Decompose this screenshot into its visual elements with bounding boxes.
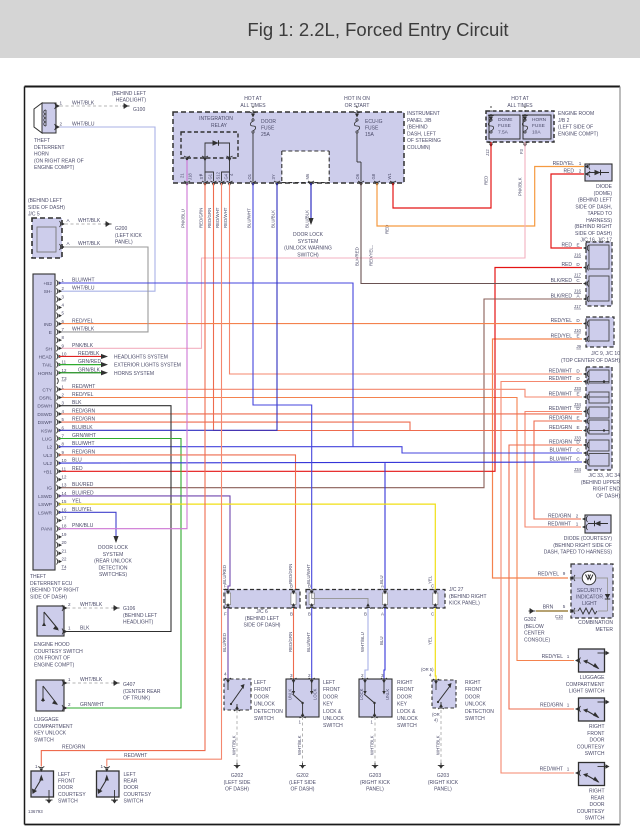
svg-text:YEL: YEL xyxy=(428,636,433,645)
svg-text:21: 21 xyxy=(180,173,185,178)
svg-text:LUGGAGE: LUGGAGE xyxy=(34,717,59,723)
svg-text:WHT/BLK: WHT/BLK xyxy=(80,602,103,608)
svg-text:UL3: UL3 xyxy=(43,453,52,459)
svg-text:ENGINE ROOM: ENGINE ROOM xyxy=(558,111,594,117)
svg-text:LIGHT SWITCH: LIGHT SWITCH xyxy=(569,689,605,695)
svg-text:J/C 33, J/C 34: J/C 33, J/C 34 xyxy=(588,473,620,479)
svg-text:G4: G4 xyxy=(224,173,229,179)
svg-text:16: 16 xyxy=(62,507,67,512)
svg-text:SWITCH): SWITCH) xyxy=(297,252,319,258)
svg-text:WHT/BLK: WHT/BLK xyxy=(80,677,103,683)
svg-text:E: E xyxy=(49,330,52,336)
svg-text:HORN: HORN xyxy=(34,152,49,158)
svg-text:5: 5 xyxy=(563,604,566,609)
svg-text:B: B xyxy=(290,612,293,617)
svg-text:DSWP: DSWP xyxy=(38,420,52,426)
svg-text:E: E xyxy=(576,416,579,421)
svg-text:DOME: DOME xyxy=(498,117,512,123)
svg-text:HEADLIGHTS SYSTEM: HEADLIGHTS SYSTEM xyxy=(114,354,168,360)
svg-text:RED/WHT: RED/WHT xyxy=(72,384,95,390)
svg-text:15A: 15A xyxy=(365,132,375,138)
svg-text:(BEHIND RIGHT: (BEHIND RIGHT xyxy=(449,594,487,600)
svg-text:FRONT: FRONT xyxy=(323,687,340,693)
svg-text:DOOR: DOOR xyxy=(590,802,605,808)
svg-text:CENTER: CENTER xyxy=(524,631,545,637)
svg-text:(OR: (OR xyxy=(432,712,440,717)
svg-text:SIDE OF DASH): SIDE OF DASH) xyxy=(30,594,67,600)
svg-text:S7: S7 xyxy=(199,174,204,180)
svg-text:UNLOCK: UNLOCK xyxy=(323,716,345,722)
svg-text:J17: J17 xyxy=(574,304,582,309)
svg-text:(BEHIND LEFT: (BEHIND LEFT xyxy=(123,613,157,619)
svg-text:RED/GRN: RED/GRN xyxy=(288,564,293,584)
svg-text:(LEFT SIDE: (LEFT SIDE xyxy=(224,780,252,786)
svg-text:2: 2 xyxy=(308,673,311,678)
svg-text:T3: T3 xyxy=(62,376,68,381)
svg-text:(BEHIND: (BEHIND xyxy=(407,125,428,131)
svg-text:FRONT: FRONT xyxy=(254,687,271,693)
svg-text:SWITCH: SWITCH xyxy=(585,751,605,757)
svg-text:SWITCH: SWITCH xyxy=(323,723,343,729)
svg-text:1: 1 xyxy=(68,677,71,682)
svg-text:BLU/BLK: BLU/BLK xyxy=(271,210,276,228)
svg-text:(BEHIND LEFT: (BEHIND LEFT xyxy=(578,198,612,204)
svg-text:G100: G100 xyxy=(133,107,145,113)
svg-text:(BEHIND LEFT: (BEHIND LEFT xyxy=(245,616,279,622)
svg-text:E: E xyxy=(576,243,579,248)
svg-text:O1: O1 xyxy=(247,173,252,179)
svg-text:25A: 25A xyxy=(261,132,271,138)
svg-text:18: 18 xyxy=(62,524,67,529)
svg-text:BLU/WHT: BLU/WHT xyxy=(247,208,252,228)
svg-text:J16: J16 xyxy=(574,253,582,258)
svg-text:WHT/BLK: WHT/BLK xyxy=(297,735,302,755)
svg-text:C10: C10 xyxy=(555,614,564,619)
svg-text:DOOR LOCK: DOOR LOCK xyxy=(293,232,324,238)
svg-text:J/C 6: J/C 6 xyxy=(256,609,268,615)
svg-text:BLU/WHT: BLU/WHT xyxy=(306,632,311,652)
svg-text:WHT/BLU: WHT/BLU xyxy=(72,286,95,292)
svg-text:10: 10 xyxy=(62,458,67,463)
svg-text:G202: G202 xyxy=(231,773,243,779)
svg-text:RELAY: RELAY xyxy=(211,123,228,129)
svg-text:DASH, LEFT: DASH, LEFT xyxy=(407,131,436,137)
svg-text:W1: W1 xyxy=(387,173,392,180)
svg-text:CONSOLE): CONSOLE) xyxy=(524,637,550,643)
svg-text:RED/WHT: RED/WHT xyxy=(540,767,563,773)
svg-text:HORN: HORN xyxy=(38,371,53,377)
svg-text:SWITCH: SWITCH xyxy=(254,716,274,722)
svg-text:G407: G407 xyxy=(123,682,135,688)
svg-text:DSWD: DSWD xyxy=(37,412,52,418)
svg-text:9: 9 xyxy=(563,571,566,576)
svg-text:REAR: REAR xyxy=(591,795,605,801)
svg-text:C: C xyxy=(431,612,434,617)
svg-text:RED/GRN: RED/GRN xyxy=(72,408,95,414)
svg-text:20: 20 xyxy=(62,540,67,545)
svg-text:FUSE: FUSE xyxy=(532,123,545,129)
svg-text:4: 4 xyxy=(429,673,432,678)
svg-text:UL2: UL2 xyxy=(43,461,52,467)
svg-text:T4: T4 xyxy=(62,565,68,570)
svg-text:15: 15 xyxy=(62,499,67,504)
svg-text:S12: S12 xyxy=(216,171,221,179)
svg-text:(DOME): (DOME) xyxy=(594,191,613,197)
svg-text:3Y: 3Y xyxy=(271,174,276,179)
svg-text:BLU/RED: BLU/RED xyxy=(222,565,227,584)
svg-text:(ON RIGHT REAR OF: (ON RIGHT REAR OF xyxy=(34,158,84,164)
svg-text:COMBINATION: COMBINATION xyxy=(578,620,613,626)
svg-text:FRONT: FRONT xyxy=(58,779,75,785)
svg-text:ENGINE HOOD: ENGINE HOOD xyxy=(34,642,70,648)
svg-text:RED/YEL: RED/YEL xyxy=(72,318,94,324)
svg-text:(LEFT SIDE OF: (LEFT SIDE OF xyxy=(558,125,593,131)
svg-text:J/C 5: J/C 5 xyxy=(28,212,40,218)
svg-text:FUSE: FUSE xyxy=(498,123,511,129)
svg-text:E: E xyxy=(576,392,579,397)
svg-text:1: 1 xyxy=(576,522,579,527)
svg-text:LOCK: LOCK xyxy=(313,688,318,700)
svg-text:(LEFT SIDE: (LEFT SIDE xyxy=(289,780,317,786)
svg-text:COURTESY: COURTESY xyxy=(124,792,152,798)
svg-text:UNLOCK: UNLOCK xyxy=(397,716,419,722)
svg-text:KICK PANEL): KICK PANEL) xyxy=(449,601,480,607)
svg-text:G106: G106 xyxy=(123,606,135,612)
svg-text:WHT/BLU: WHT/BLU xyxy=(360,632,365,652)
svg-text:DOOR: DOOR xyxy=(465,694,480,700)
svg-text:OF DASH): OF DASH) xyxy=(225,787,249,793)
svg-text:G203: G203 xyxy=(437,773,449,779)
svg-text:FRONT: FRONT xyxy=(587,731,604,737)
svg-text:3: 3 xyxy=(381,673,384,678)
svg-text:INSTRUMENT: INSTRUMENT xyxy=(407,111,440,117)
svg-text:PNK/BLU: PNK/BLU xyxy=(181,209,186,228)
svg-text:1: 1 xyxy=(567,767,570,772)
svg-text:DOOR: DOOR xyxy=(261,119,276,125)
svg-text:PANEL): PANEL) xyxy=(434,787,452,793)
svg-text:DASH, TAPED TO HARNESS): DASH, TAPED TO HARNESS) xyxy=(544,550,613,556)
svg-text:4: 4 xyxy=(224,672,227,677)
svg-text:LEFT: LEFT xyxy=(323,680,335,686)
svg-text:E: E xyxy=(576,334,579,339)
svg-text:HOT AT: HOT AT xyxy=(244,96,262,102)
svg-text:RED: RED xyxy=(484,176,489,185)
svg-text:DETECTION: DETECTION xyxy=(465,709,494,715)
svg-text:SWITCH: SWITCH xyxy=(397,723,417,729)
svg-text:(BEHIND UPPER: (BEHIND UPPER xyxy=(581,480,621,486)
svg-text:IND: IND xyxy=(44,322,53,328)
svg-text:ENGINE COMPT): ENGINE COMPT) xyxy=(34,662,75,668)
svg-text:HORNS SYSTEM: HORNS SYSTEM xyxy=(114,371,154,377)
svg-text:(BEHIND LEFT: (BEHIND LEFT xyxy=(112,91,146,97)
svg-text:J33: J33 xyxy=(574,386,582,391)
svg-text:(BEHIND TOP RIGHT: (BEHIND TOP RIGHT xyxy=(30,588,79,594)
svg-text:KEY: KEY xyxy=(397,702,408,708)
svg-text:RED/GRN: RED/GRN xyxy=(540,703,563,709)
svg-text:REAR: REAR xyxy=(124,779,138,785)
svg-text:3: 3 xyxy=(290,673,293,678)
svg-text:PNK/BLK: PNK/BLK xyxy=(518,177,523,196)
svg-text:BRN: BRN xyxy=(543,605,554,611)
svg-text:(BEHIND RIGHT SIDE OF: (BEHIND RIGHT SIDE OF xyxy=(553,543,612,549)
svg-text:INDICATOR: INDICATOR xyxy=(576,595,603,601)
svg-text:SECURITY: SECURITY xyxy=(577,588,603,594)
svg-text:OF TRUNK): OF TRUNK) xyxy=(123,696,150,702)
svg-text:WHT/BLK: WHT/BLK xyxy=(436,735,441,755)
svg-text:12: 12 xyxy=(62,475,67,480)
svg-text:RED/GRN: RED/GRN xyxy=(199,208,204,228)
svg-text:FRONT: FRONT xyxy=(397,687,414,693)
svg-text:SYSTEM: SYSTEM xyxy=(298,239,319,245)
svg-text:WHT/BLK: WHT/BLK xyxy=(370,735,375,755)
svg-text:SWITCH: SWITCH xyxy=(34,737,54,743)
svg-text:13: 13 xyxy=(62,483,67,488)
svg-text:DIODE (COURTESY): DIODE (COURTESY) xyxy=(564,536,613,542)
svg-text:136793: 136793 xyxy=(28,809,43,814)
svg-text:BLU: BLU xyxy=(379,575,384,584)
svg-text:11: 11 xyxy=(62,360,67,365)
svg-text:GRN/WHT: GRN/WHT xyxy=(80,702,104,708)
svg-text:COLUMN): COLUMN) xyxy=(407,145,431,151)
svg-text:KEY: KEY xyxy=(323,702,334,708)
svg-text:RED: RED xyxy=(561,243,572,249)
svg-text:IG: IG xyxy=(47,486,52,492)
svg-text:DOOR: DOOR xyxy=(323,694,338,700)
svg-text:2: 2 xyxy=(579,169,582,174)
svg-text:DOOR: DOOR xyxy=(124,785,139,791)
svg-text:LIGHT: LIGHT xyxy=(582,601,597,607)
svg-text:(TOP CENTER OF DASH): (TOP CENTER OF DASH) xyxy=(561,358,620,364)
svg-text:METER: METER xyxy=(596,627,614,633)
svg-text:BLK/RED: BLK/RED xyxy=(72,482,94,488)
svg-text:(RIGHT KICK: (RIGHT KICK xyxy=(360,780,391,786)
svg-text:DOOR: DOOR xyxy=(254,694,269,700)
svg-text:SH-: SH- xyxy=(44,289,53,295)
svg-text:HOT AT: HOT AT xyxy=(511,96,529,102)
svg-text:LEFT: LEFT xyxy=(58,772,70,778)
svg-text:(RIGHT KICK: (RIGHT KICK xyxy=(428,780,459,786)
svg-text:(REAR UNLOCK: (REAR UNLOCK xyxy=(94,559,132,565)
svg-text:LOCK &: LOCK & xyxy=(397,709,416,715)
svg-text:10: 10 xyxy=(62,351,67,356)
svg-text:HORN: HORN xyxy=(532,117,547,123)
svg-text:DOOR: DOOR xyxy=(590,738,605,744)
svg-text:TAPED TO: TAPED TO xyxy=(588,211,613,217)
svg-text:1: 1 xyxy=(68,626,71,631)
svg-text:PNK/BLK: PNK/BLK xyxy=(72,343,94,349)
svg-text:J/C 9, J/C 10: J/C 9, J/C 10 xyxy=(591,351,620,357)
svg-text:RED/GRN: RED/GRN xyxy=(207,208,212,228)
svg-text:J33: J33 xyxy=(574,436,582,441)
svg-text:UNLOCK: UNLOCK xyxy=(254,702,276,708)
svg-text:ENGINE COMPT): ENGINE COMPT) xyxy=(34,165,75,171)
svg-text:22: 22 xyxy=(62,557,67,562)
svg-text:THEFT: THEFT xyxy=(30,574,46,580)
svg-text:J/B 2: J/B 2 xyxy=(558,118,570,124)
svg-text:WHT/BLK: WHT/BLK xyxy=(78,241,101,247)
svg-text:(BELOW: (BELOW xyxy=(524,624,544,630)
svg-text:DOOR: DOOR xyxy=(397,694,412,700)
svg-text:FRONT: FRONT xyxy=(465,687,482,693)
svg-text:YEL: YEL xyxy=(428,575,433,584)
svg-text:SIDE OF DASH): SIDE OF DASH) xyxy=(28,205,65,211)
svg-text:RED/WHT: RED/WHT xyxy=(124,753,147,759)
svg-text:FUSE: FUSE xyxy=(365,126,379,132)
svg-text:WHT/BLK: WHT/BLK xyxy=(232,735,237,755)
svg-text:LEFT: LEFT xyxy=(254,680,266,686)
svg-text:SIDE OF DASH): SIDE OF DASH) xyxy=(575,231,612,237)
svg-text:1: 1 xyxy=(60,101,63,106)
svg-text:+B1: +B1 xyxy=(43,469,52,475)
svg-text:17: 17 xyxy=(62,516,67,521)
svg-text:L2: L2 xyxy=(47,445,53,451)
svg-text:TAIL: TAIL xyxy=(42,363,52,369)
svg-text:BLK/RED: BLK/RED xyxy=(355,247,360,266)
svg-text:J/C 27: J/C 27 xyxy=(449,587,464,593)
svg-text:LUGGAGE: LUGGAGE xyxy=(580,675,605,681)
svg-text:2: 2 xyxy=(60,122,63,127)
svg-text:HOT IN ON: HOT IN ON xyxy=(344,96,370,102)
svg-text:(CENTER REAR: (CENTER REAR xyxy=(123,689,161,695)
svg-text:E: E xyxy=(576,425,579,430)
svg-text:WHT/BLK: WHT/BLK xyxy=(78,218,101,224)
svg-text:2: 2 xyxy=(68,602,71,607)
svg-text:12: 12 xyxy=(62,368,67,373)
svg-text:G1: G1 xyxy=(208,173,213,179)
svg-text:11: 11 xyxy=(62,466,67,471)
svg-text:RED/YEL: RED/YEL xyxy=(538,572,560,578)
svg-text:RED/GRN: RED/GRN xyxy=(288,632,293,652)
svg-text:SYSTEM: SYSTEM xyxy=(103,552,124,558)
svg-text:PANEL): PANEL) xyxy=(366,787,384,793)
svg-text:J9: J9 xyxy=(576,344,581,349)
svg-text:J12: J12 xyxy=(485,149,490,156)
svg-text:J34: J34 xyxy=(574,402,582,407)
svg-text:RED/GRN: RED/GRN xyxy=(62,745,85,751)
svg-text:(LEFT KICK: (LEFT KICK xyxy=(115,233,143,239)
svg-text:F3: F3 xyxy=(519,148,524,154)
svg-text:F: F xyxy=(224,612,227,617)
svg-text:RED/YEL: RED/YEL xyxy=(542,654,564,660)
svg-text:SWITCHES): SWITCHES) xyxy=(99,572,127,578)
svg-text:COURTESY: COURTESY xyxy=(58,792,86,798)
svg-text:OF DASH): OF DASH) xyxy=(596,493,620,499)
svg-text:EXTERIOR LIGHTS SYSTEM: EXTERIOR LIGHTS SYSTEM xyxy=(114,363,181,369)
svg-text:1: 1 xyxy=(567,654,570,659)
svg-text:SWITCH: SWITCH xyxy=(58,798,78,804)
svg-text:2: 2 xyxy=(68,702,71,707)
svg-text:J18: J18 xyxy=(188,173,193,180)
svg-text:19: 19 xyxy=(62,532,67,537)
svg-text:INTEGRATION: INTEGRATION xyxy=(199,116,233,122)
svg-text:CTY: CTY xyxy=(42,387,52,393)
svg-text:DETERRENT ECU: DETERRENT ECU xyxy=(30,581,73,587)
svg-text:21: 21 xyxy=(62,548,67,553)
svg-text:SWITCH: SWITCH xyxy=(124,798,144,804)
svg-text:(ON FRONT OF: (ON FRONT OF xyxy=(34,656,70,662)
svg-text:G8: G8 xyxy=(371,173,376,179)
svg-text:J34: J34 xyxy=(574,467,582,472)
svg-text:LSWR: LSWR xyxy=(38,510,52,516)
svg-text:LOCK &: LOCK & xyxy=(323,709,342,715)
svg-text:LEFT: LEFT xyxy=(124,772,136,778)
svg-text:OF STEERING: OF STEERING xyxy=(407,138,441,144)
svg-text:G203: G203 xyxy=(369,773,381,779)
svg-text:UNLK: UNLK xyxy=(288,689,293,700)
svg-text:(UNLOCK WARNING: (UNLOCK WARNING xyxy=(284,246,332,252)
svg-text:FUSE: FUSE xyxy=(261,126,275,132)
svg-text:SWITCH: SWITCH xyxy=(465,716,485,722)
svg-text:RED/WHT: RED/WHT xyxy=(223,207,228,228)
svg-text:COURTESY SWITCH: COURTESY SWITCH xyxy=(34,649,83,655)
svg-text:2: 2 xyxy=(361,673,364,678)
svg-text:2: 2 xyxy=(576,514,579,519)
svg-text:COMPARTMENT: COMPARTMENT xyxy=(566,682,605,688)
svg-text:ALL TIMES: ALL TIMES xyxy=(507,103,533,109)
svg-text:RED/YEL..: RED/YEL.. xyxy=(369,245,374,266)
svg-text:G200: G200 xyxy=(115,226,127,232)
svg-text:PANI: PANI xyxy=(41,527,52,533)
svg-text:HEAD: HEAD xyxy=(39,354,53,360)
svg-text:G202: G202 xyxy=(296,773,308,779)
svg-text:HEADLIGHT): HEADLIGHT) xyxy=(116,97,147,103)
svg-text:DOOR LOCK: DOOR LOCK xyxy=(98,545,129,551)
svg-text:THEFT: THEFT xyxy=(34,138,50,144)
svg-text:1: 1 xyxy=(100,764,103,769)
svg-text:BLK: BLK xyxy=(80,626,90,632)
svg-text:1: 1 xyxy=(567,703,570,708)
svg-text:SIDE OF DASH,: SIDE OF DASH, xyxy=(575,204,612,210)
svg-text:WHT/BLK: WHT/BLK xyxy=(72,326,95,332)
svg-text:RIGHT: RIGHT xyxy=(589,789,605,795)
svg-text:J10: J10 xyxy=(574,328,582,333)
svg-text:RIGHT: RIGHT xyxy=(465,680,481,686)
svg-text:BLU/WHT: BLU/WHT xyxy=(306,564,311,584)
svg-text:DETECTION: DETECTION xyxy=(254,709,283,715)
svg-text:COURTESY: COURTESY xyxy=(577,744,605,750)
svg-text:UNLK: UNLK xyxy=(385,689,390,700)
svg-text:RED/GRN: RED/GRN xyxy=(72,417,95,423)
svg-text:(OR 5): (OR 5) xyxy=(421,667,434,672)
svg-text:COMPARTMENT: COMPARTMENT xyxy=(34,724,73,730)
svg-text:DSWH: DSWH xyxy=(37,404,52,410)
svg-text:ECU-IG: ECU-IG xyxy=(365,119,383,125)
svg-text:SIDE OF DASH): SIDE OF DASH) xyxy=(244,623,281,629)
svg-text:PANEL J/B: PANEL J/B xyxy=(407,118,432,124)
svg-text:RIGHT END: RIGHT END xyxy=(593,487,621,493)
svg-text:KSW: KSW xyxy=(41,428,52,434)
svg-text:HEADLIGHT): HEADLIGHT) xyxy=(123,620,154,626)
svg-text:DOOR: DOOR xyxy=(58,785,73,791)
svg-text:1: 1 xyxy=(35,764,38,769)
svg-text:LSWD: LSWD xyxy=(38,494,52,500)
svg-text:LUG: LUG xyxy=(42,437,52,443)
svg-text:RED/YEL: RED/YEL xyxy=(72,392,94,398)
svg-text:J17: J17 xyxy=(574,273,582,278)
svg-text:O6: O6 xyxy=(355,173,360,179)
svg-text:SH: SH xyxy=(45,346,52,352)
svg-text:(BEHIND LEFT: (BEHIND LEFT xyxy=(28,198,62,204)
svg-text:PANEL): PANEL) xyxy=(115,240,133,246)
svg-text:RIGHT: RIGHT xyxy=(397,680,413,686)
svg-text:BLU: BLU xyxy=(379,636,384,645)
svg-text:LOCK: LOCK xyxy=(359,688,364,700)
svg-text:KEY UNLOCK: KEY UNLOCK xyxy=(34,731,67,737)
svg-text:1: 1 xyxy=(579,161,582,166)
svg-text:ENGINE COMPT): ENGINE COMPT) xyxy=(558,131,599,137)
svg-text:DIODE: DIODE xyxy=(596,184,613,190)
svg-text:BLU/RED: BLU/RED xyxy=(222,633,227,652)
